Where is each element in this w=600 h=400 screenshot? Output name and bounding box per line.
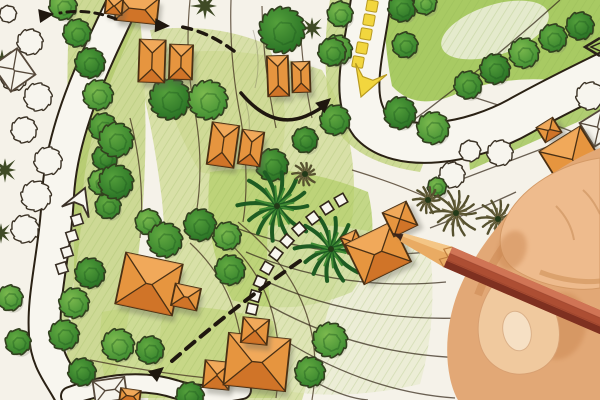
landscape-site-plan-photo <box>0 0 600 400</box>
site-plan-drawing <box>0 0 600 400</box>
house-pair-e <box>267 56 315 103</box>
house-pair-b <box>138 40 197 89</box>
